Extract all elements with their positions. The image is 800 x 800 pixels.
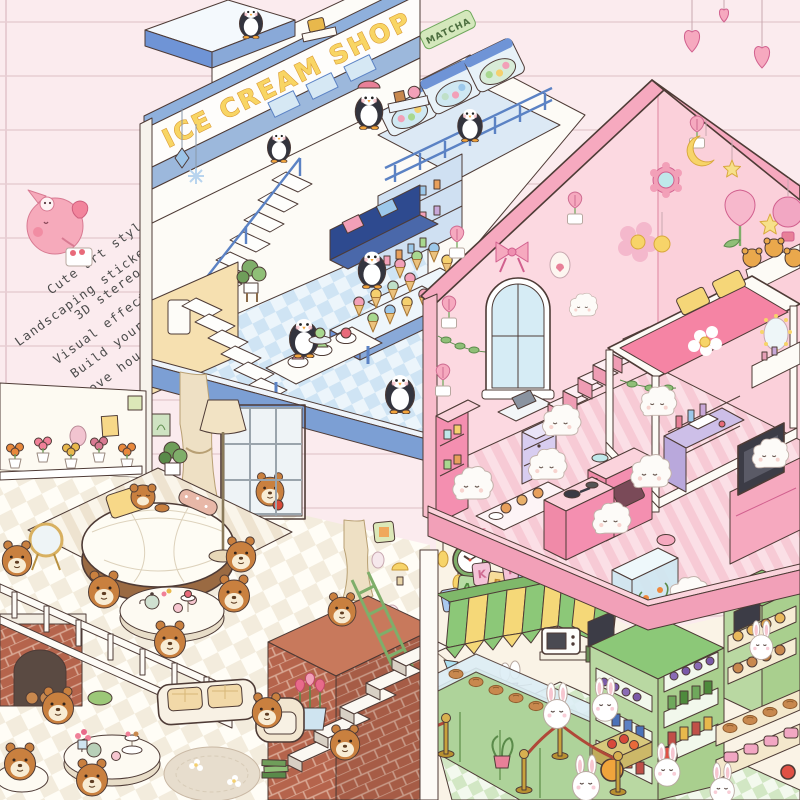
bear-character — [330, 725, 359, 760]
bear-character — [77, 759, 108, 796]
bread — [529, 701, 543, 710]
bear-character — [5, 743, 36, 780]
bread — [509, 693, 523, 702]
pink-wall-edge — [423, 294, 437, 522]
book-stack — [262, 760, 288, 778]
bear-character — [219, 575, 250, 612]
bear-character — [155, 621, 186, 658]
sofa — [157, 679, 258, 726]
corner-post — [420, 550, 438, 800]
red-ball — [781, 765, 795, 779]
bear-character — [43, 687, 74, 724]
fluffy-rug — [164, 747, 260, 800]
bread — [723, 723, 737, 732]
bear-character — [252, 693, 281, 728]
sticker-scene: Cute art style Landscaping sticker 3D st… — [0, 0, 800, 800]
microwave — [540, 628, 586, 660]
penguin-chef — [355, 81, 383, 130]
bear-character — [226, 537, 255, 572]
berry-basket — [66, 248, 92, 266]
stool — [657, 535, 675, 546]
bread — [763, 707, 777, 716]
strawberry-icon — [72, 201, 88, 218]
green-stool — [88, 691, 112, 705]
scene-svg: Cute art style Landscaping sticker 3D st… — [0, 0, 800, 800]
bread — [449, 669, 463, 678]
bread — [743, 715, 757, 724]
bread — [489, 685, 503, 694]
bear-character — [328, 593, 356, 626]
pendant-lamp — [438, 551, 448, 567]
bear-character — [2, 541, 31, 576]
bread — [469, 677, 483, 686]
bread — [783, 699, 797, 708]
bear-character — [89, 571, 120, 608]
